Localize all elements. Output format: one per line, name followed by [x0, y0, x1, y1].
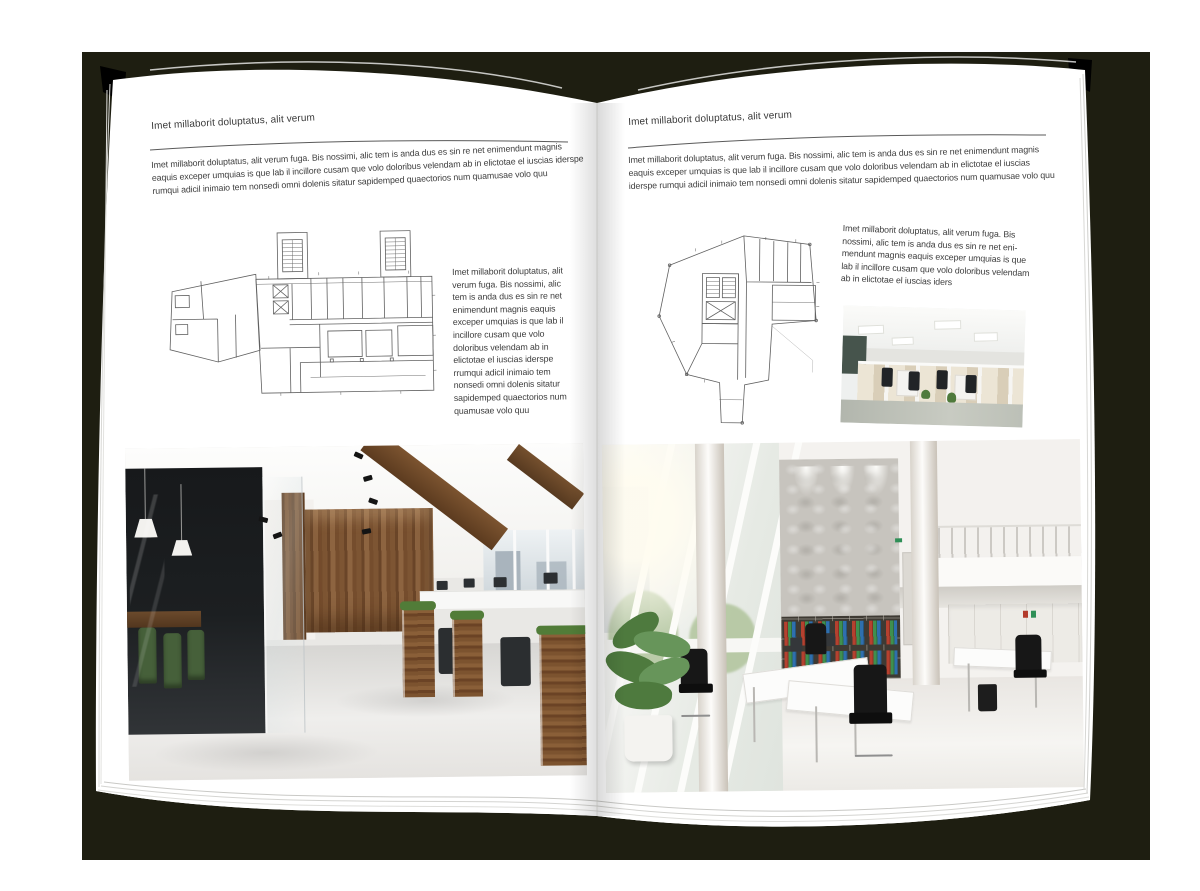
left-floorplan-drawing — [158, 225, 453, 416]
monitor — [791, 637, 803, 651]
downlight-glow — [863, 465, 889, 495]
planter-box — [539, 632, 586, 765]
mezzanine-balcony — [936, 439, 1081, 587]
monitor — [436, 581, 447, 590]
planter-box — [402, 608, 435, 698]
small-plant — [947, 393, 956, 403]
ceiling-light-panel — [934, 320, 962, 330]
office-chair — [909, 372, 920, 391]
floor-shadow — [151, 731, 380, 774]
office-chair — [1015, 634, 1042, 673]
exit-sign — [895, 539, 902, 543]
monitor — [464, 579, 475, 588]
waste-bin — [978, 684, 997, 712]
plant-pot — [624, 716, 672, 762]
magazine-spread-mockup: Imet millaborit doluptatus, alit verum I… — [0, 0, 1200, 891]
office-chair — [965, 374, 976, 393]
downlight-glow — [793, 466, 819, 496]
ceiling-light-panel — [974, 333, 998, 343]
office-chair — [881, 367, 892, 386]
office-chair — [936, 370, 947, 389]
balcony-railing — [937, 524, 1081, 560]
glass-reflection — [128, 495, 166, 687]
lamp-cord — [180, 484, 182, 542]
planter-grass — [400, 601, 436, 610]
ceiling-light-panel — [892, 337, 914, 346]
round-column — [910, 441, 939, 685]
right-floorplan-drawing — [644, 221, 836, 431]
monitor — [494, 577, 507, 587]
left-caption-column: Imet millaborit doluptatus, alit verum f… — [452, 264, 572, 417]
column — [695, 443, 728, 791]
glass-partition — [263, 477, 306, 733]
first-aid-sign — [1031, 610, 1036, 617]
office-chair-seat — [679, 684, 713, 693]
right-office-photo — [602, 439, 1084, 793]
office-chair — [805, 623, 827, 655]
planter-box — [452, 617, 483, 697]
office-chair — [853, 664, 887, 717]
pendant-lamp — [171, 540, 192, 556]
planter-grass — [537, 625, 587, 635]
glass-meeting-room — [125, 467, 266, 734]
office-chair-seat — [849, 713, 892, 724]
desk-leg — [968, 663, 971, 712]
office-chair — [501, 636, 531, 686]
planter-grass — [450, 610, 483, 619]
ceiling-light-panel — [857, 324, 883, 334]
concrete-wall — [779, 459, 900, 617]
small-office-photo — [840, 305, 1025, 427]
balcony-fascia — [938, 556, 1082, 587]
downlight-glow — [829, 465, 855, 495]
office-chair-seat — [1013, 669, 1047, 678]
left-office-photo — [125, 443, 587, 781]
small-plant — [921, 390, 930, 400]
right-caption-column: Imet millaborit doluptatus, alit verum f… — [841, 222, 1035, 292]
green-chair — [188, 630, 205, 681]
monitor — [543, 573, 557, 584]
workstation-desk — [420, 589, 585, 609]
fire-safety-sign — [1023, 610, 1028, 617]
